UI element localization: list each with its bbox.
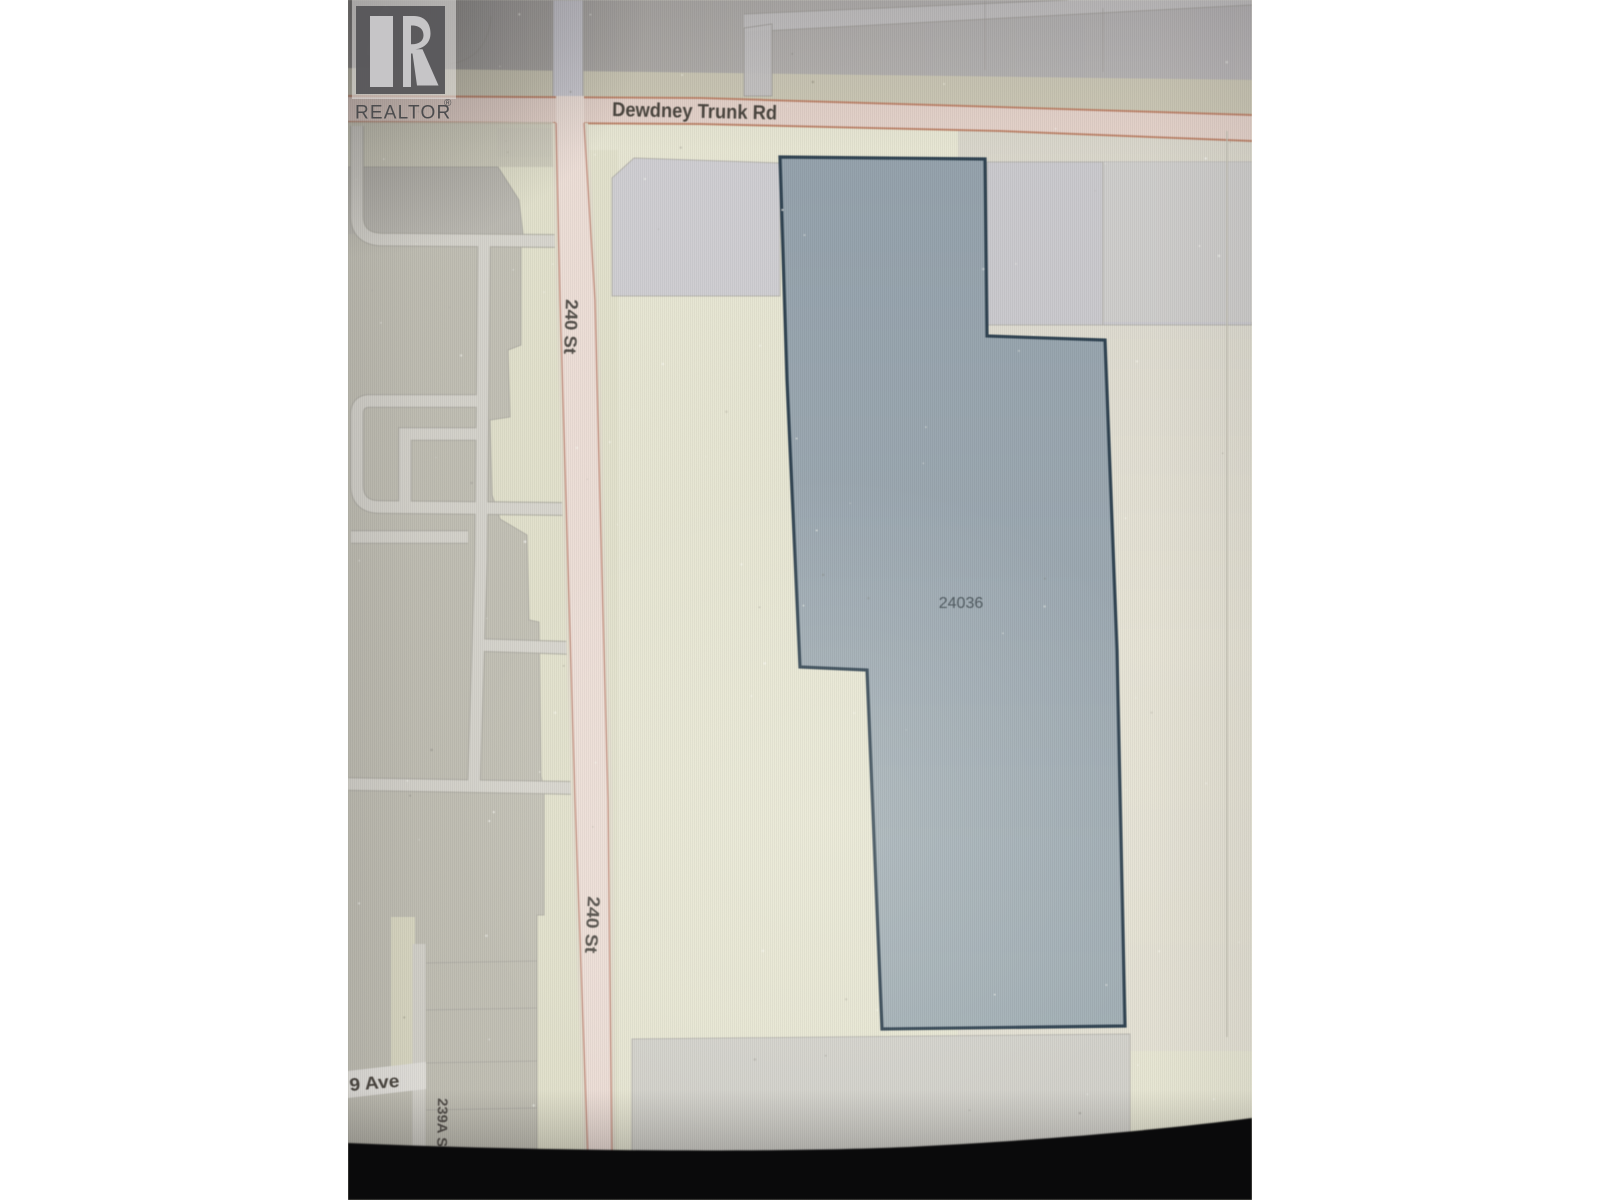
svg-text:Dewdney Trunk Rd: Dewdney Trunk Rd <box>612 99 777 124</box>
svg-text:240 St: 240 St <box>560 299 582 355</box>
svg-text:24036: 24036 <box>939 595 984 612</box>
svg-text:239A St: 239A St <box>434 1098 451 1153</box>
svg-text:240 St: 240 St <box>581 896 604 954</box>
